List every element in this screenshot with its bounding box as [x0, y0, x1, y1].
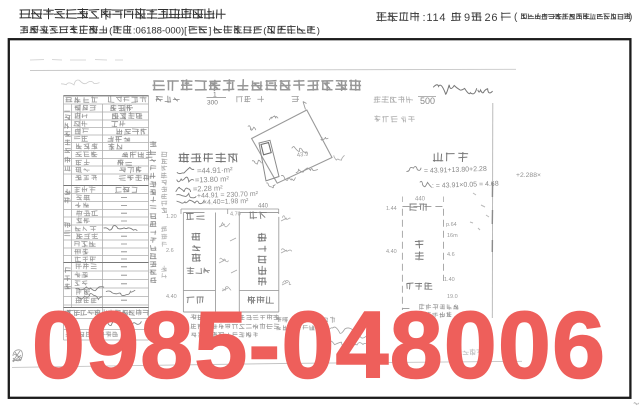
svg-text:4.40: 4.40 — [386, 249, 397, 255]
svg-text:500: 500 — [420, 96, 435, 106]
svg-text:0985-048006: 0985-048006 — [32, 293, 606, 399]
svg-text::114: :114 — [423, 12, 447, 24]
svg-text:+2.288×: +2.288× — [516, 172, 541, 179]
svg-text::06188-000)[: :06188-000)[ — [133, 26, 187, 37]
svg-text:440: 440 — [415, 197, 426, 203]
svg-text:1.40: 1.40 — [444, 277, 455, 283]
svg-text:300: 300 — [207, 100, 218, 107]
svg-text:16m: 16m — [447, 233, 458, 239]
svg-text:4.6: 4.6 — [447, 252, 455, 258]
svg-text:26: 26 — [485, 12, 499, 24]
svg-text:]: ] — [209, 26, 212, 37]
svg-text:p.64: p.64 — [446, 222, 457, 228]
svg-text:1.20: 1.20 — [166, 214, 177, 220]
svg-text:9: 9 — [464, 12, 470, 24]
svg-text:): ) — [317, 26, 320, 37]
svg-text:440: 440 — [258, 204, 269, 210]
svg-text:2.6: 2.6 — [166, 248, 174, 254]
svg-text:): ) — [629, 12, 632, 23]
svg-text:1.44: 1.44 — [386, 206, 397, 212]
